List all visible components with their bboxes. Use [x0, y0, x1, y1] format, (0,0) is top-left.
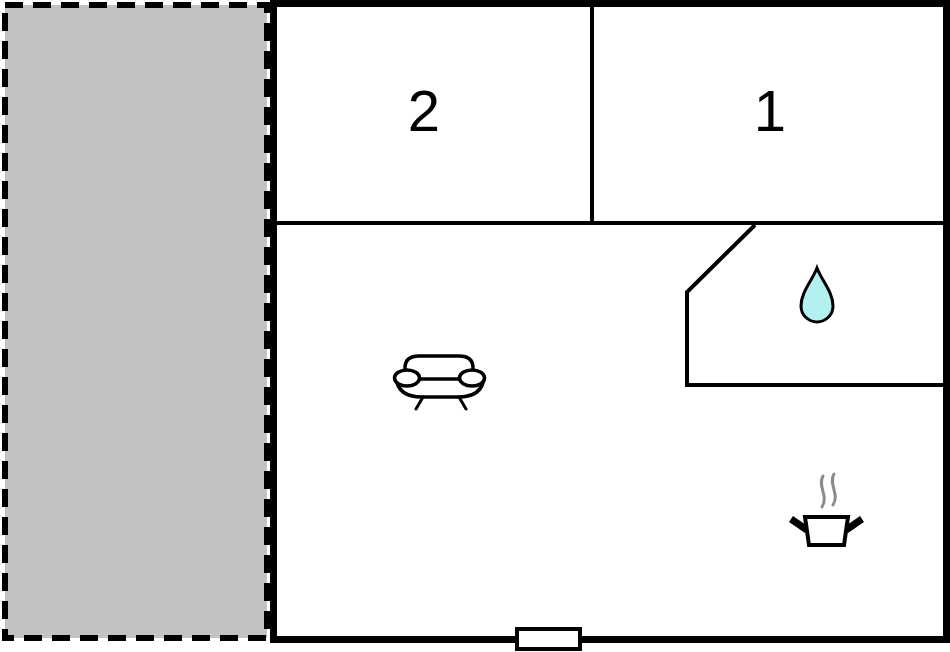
room-2-label: 2 — [408, 78, 440, 143]
floorplan-drawing: 2 1 — [0, 0, 950, 652]
floorplan-canvas: 2 1 — [0, 0, 950, 652]
room-1-label: 1 — [754, 78, 786, 143]
terrace-area — [5, 5, 267, 638]
entrance-door — [517, 629, 580, 649]
pot-body — [805, 517, 848, 545]
